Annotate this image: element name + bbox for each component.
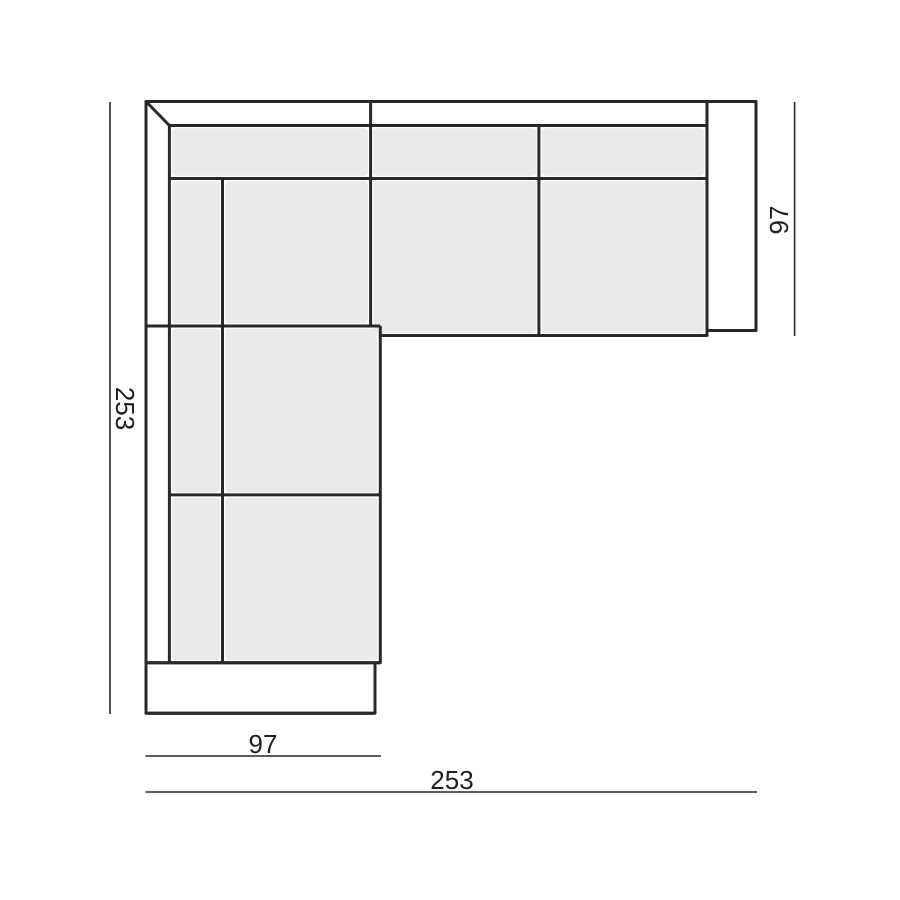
svg-text:253: 253 [430,765,473,795]
svg-text:97: 97 [249,729,278,759]
svg-text:253: 253 [110,387,140,430]
svg-text:97: 97 [764,206,794,235]
